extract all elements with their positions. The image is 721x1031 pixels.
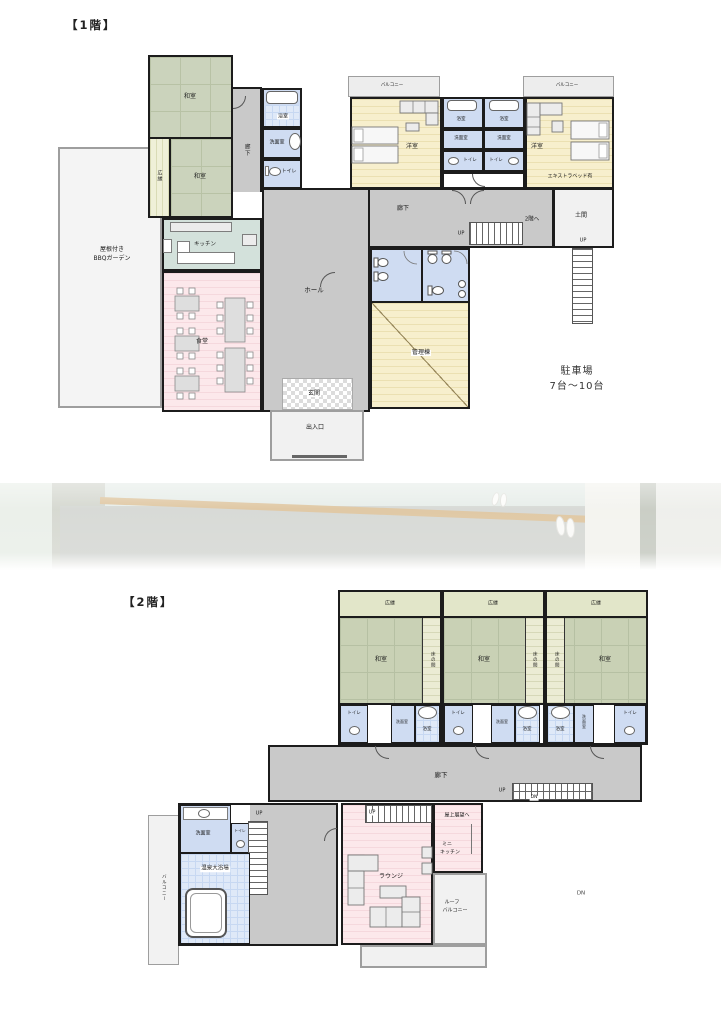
doma-up-label: UP xyxy=(580,239,587,244)
stairs-to-2f xyxy=(469,222,523,245)
sink-icon xyxy=(289,133,301,150)
corridor-2f-label: 廊下 xyxy=(435,772,448,779)
lounge-label: ラウンジ xyxy=(379,874,403,880)
onsen-tub-inner xyxy=(190,893,222,933)
minikitchen-label-2: キッチン xyxy=(440,851,460,856)
parking-label-1: 駐車場 xyxy=(561,367,594,377)
kitchen-counter-top xyxy=(170,222,232,232)
u1-hiroen-label: 広縁 xyxy=(385,602,395,607)
u2-washitsu-label: 和室 xyxy=(478,657,490,663)
roof-balcony-label-1: ルーフ xyxy=(445,901,460,906)
bath-left-label: 浴室 xyxy=(277,115,289,120)
toilet-icon xyxy=(448,157,459,165)
stairs-up-2f-label: UP xyxy=(499,789,506,794)
dining-label: 食堂 xyxy=(196,339,208,345)
up-left-2f-label: UP xyxy=(256,812,263,817)
washitsu-a-label: 和室 xyxy=(184,94,196,100)
rooftop-label: 屋上展望へ xyxy=(444,814,469,819)
u2-senmen xyxy=(491,705,515,743)
bathtub-icon xyxy=(489,100,519,111)
entrance-porch xyxy=(270,410,364,461)
toilet-left-label: トイレ xyxy=(281,170,296,175)
doma-label: 土間 xyxy=(575,213,587,219)
bathtub-icon xyxy=(518,706,537,719)
toilet-icon xyxy=(453,726,464,735)
bathtub-icon xyxy=(551,706,570,719)
corridor-left-label: 廊下 xyxy=(243,144,249,157)
hall-label: ホール xyxy=(304,287,324,294)
bathtub-icon xyxy=(418,706,437,719)
roof-balcony-label-2: バルコニー xyxy=(443,909,468,914)
stairs-2f-divider xyxy=(512,791,593,792)
u1-washitsu-label: 和室 xyxy=(375,657,387,663)
senmen-bedL-label: 洗面室 xyxy=(454,137,468,142)
toilet-2f-label: トイレ xyxy=(234,829,245,833)
u3-senmen-label: 洗面室 xyxy=(582,715,586,730)
floor1-title: 【1階】 xyxy=(66,17,117,33)
bath-bedR-label: 浴室 xyxy=(500,118,509,123)
senmen-2f-label: 洗面室 xyxy=(195,832,210,837)
u3-washitsu-label: 和室 xyxy=(599,657,611,663)
porch-step xyxy=(292,455,347,458)
bbq-garden xyxy=(58,147,162,408)
balcony-left-label: バルコニー xyxy=(381,84,403,89)
dn-outside-label: DN xyxy=(577,891,585,897)
bathtub-icon xyxy=(447,100,477,111)
yoshitsu-right-label: 洋室 xyxy=(531,144,543,150)
parking-label-2: 7台～10台 xyxy=(549,382,604,392)
to-2f-label: 2階へ xyxy=(525,217,540,223)
u3-hiroen-label: 広縁 xyxy=(591,602,601,607)
floorplan-page: 【1階】 屋根付き BBQガーデン 和室 広縁 和室 廊下 浴室 洗面室 トイレ… xyxy=(0,0,721,1031)
u2-hiroen-label: 広縁 xyxy=(488,602,498,607)
toilet-bedL-label: トイレ xyxy=(463,159,477,164)
roof-balcony-strip xyxy=(360,945,487,968)
genkan-label: 玄関 xyxy=(307,391,321,397)
u1-tokonoma-label: 床の間 xyxy=(430,652,435,669)
stair-up-label: UP xyxy=(458,232,465,237)
onsen-label: 温泉大浴場 xyxy=(200,866,230,872)
u3-tokonoma-label: 床の間 xyxy=(554,652,559,669)
toilet-icon xyxy=(349,726,360,735)
u1-bath-label: 浴室 xyxy=(423,728,432,733)
bathtub-icon xyxy=(266,91,298,104)
stairs-2f-left xyxy=(248,821,268,895)
stove-icon xyxy=(163,239,172,253)
u1-senmen xyxy=(391,705,415,743)
u1-toilet-label: トイレ xyxy=(347,712,361,717)
minikitchen-counter-line xyxy=(471,824,472,854)
senmen-left-label: 洗面室 xyxy=(269,141,284,146)
bbq-garden-label-1: 屋根付き xyxy=(100,247,124,253)
bath-bedL-label: 浴室 xyxy=(457,118,466,123)
fridge-icon xyxy=(242,234,257,246)
balcony-right-label: バルコニー xyxy=(556,84,578,89)
entrance-photo xyxy=(0,483,721,570)
kitchen-label: キッチン xyxy=(194,242,216,248)
stairs-dn-2f-label: DN xyxy=(530,796,539,801)
bbq-garden-label-2: BBQガーデン xyxy=(94,256,131,262)
kitchen-counter-l-horizontal xyxy=(177,252,235,264)
washitsu-b-label: 和室 xyxy=(194,174,206,180)
toilet-icon xyxy=(236,840,245,848)
u2-tokonoma-label: 床の間 xyxy=(532,652,537,669)
engawa-label: 広縁 xyxy=(157,170,162,182)
kanri-label: 管理棟 xyxy=(411,350,431,356)
floor2-title: 【2階】 xyxy=(123,594,174,610)
dining-furniture xyxy=(162,271,262,412)
exterior-stairs xyxy=(572,248,593,324)
photo-wash-overlay xyxy=(0,483,721,570)
lounge-up-label: UP xyxy=(368,811,377,816)
u2-toilet-label: トイレ xyxy=(451,712,465,717)
u3-bath-label: 浴室 xyxy=(556,728,565,733)
porch-label: 出入口 xyxy=(306,425,324,431)
toilet-icon xyxy=(624,726,635,735)
senmen-bedR-label: 洗面室 xyxy=(497,137,511,142)
public-toilet-fixtures xyxy=(370,248,470,303)
u2-bath-label: 浴室 xyxy=(523,728,532,733)
toilet-bedR-label: トイレ xyxy=(489,159,503,164)
u3-toilet-label: トイレ xyxy=(623,712,637,717)
corridor-top-label: 廊下 xyxy=(397,206,409,212)
sink-icon xyxy=(198,809,210,818)
toilet-icon xyxy=(269,167,281,176)
yoshitsu-left-label: 洋室 xyxy=(406,144,418,150)
extra-bed-note: エキストラベッド有 xyxy=(548,175,593,180)
bedroom-left-furniture xyxy=(350,97,442,189)
balcony-2f-label: バルコニー xyxy=(161,874,166,902)
minikitchen-label-1: ミニ xyxy=(442,843,452,848)
u1-senmen-label: 洗面室 xyxy=(396,720,408,724)
toilet-icon xyxy=(508,157,519,165)
u2-senmen-label: 洗面室 xyxy=(496,720,508,724)
